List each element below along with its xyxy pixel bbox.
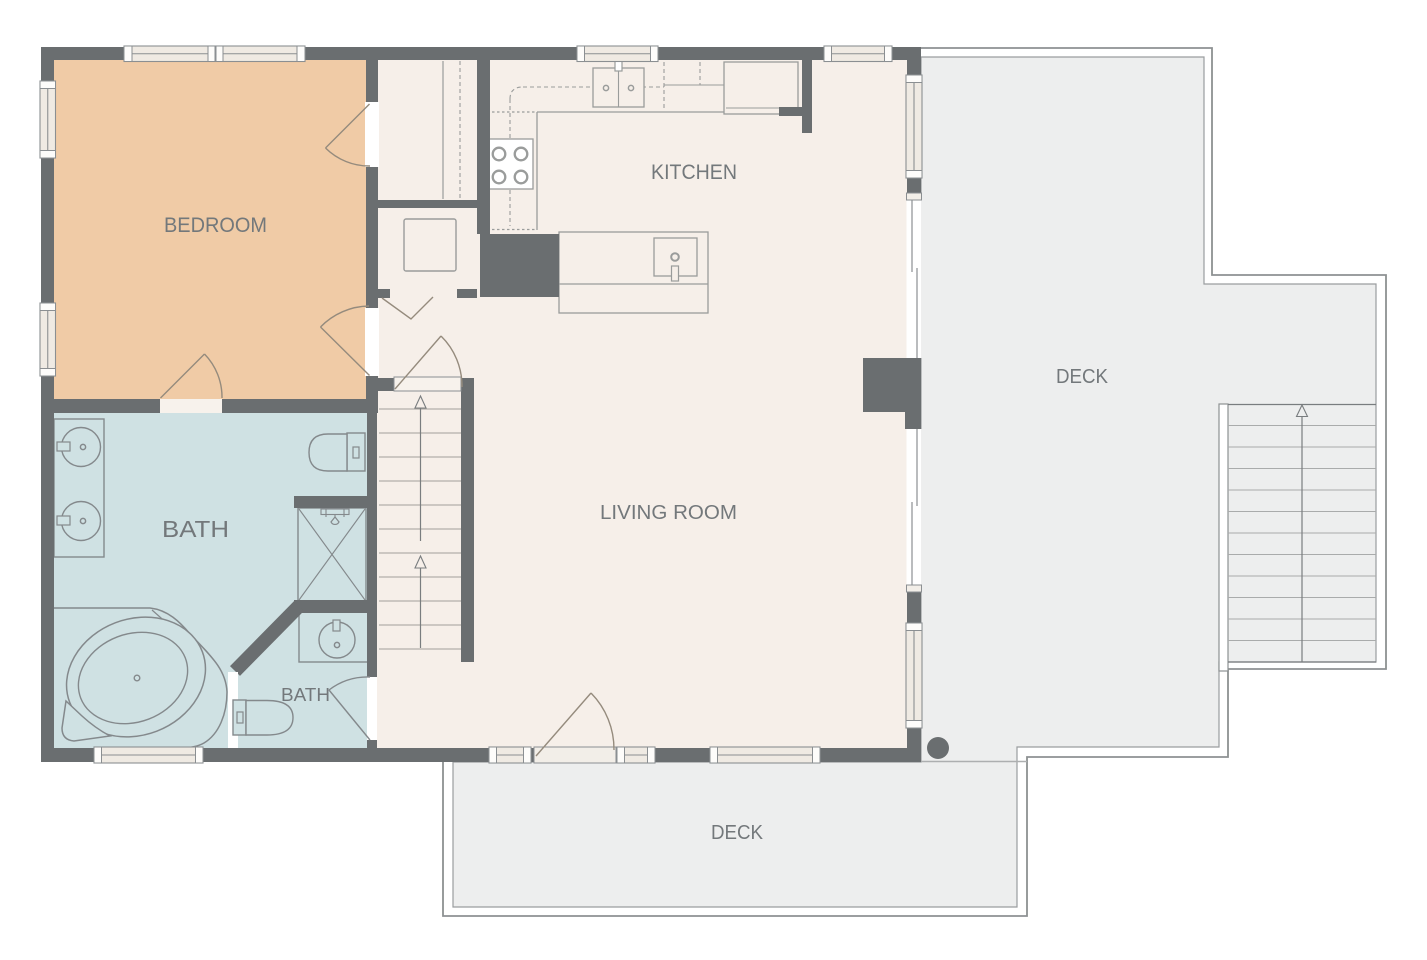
svg-text:BEDROOM: BEDROOM: [164, 214, 267, 237]
svg-text:KITCHEN: KITCHEN: [651, 161, 737, 184]
svg-text:DECK: DECK: [711, 822, 764, 844]
svg-text:BATH: BATH: [162, 516, 229, 542]
svg-text:LIVING ROOM: LIVING ROOM: [600, 502, 737, 524]
svg-text:BATH: BATH: [281, 685, 330, 705]
svg-text:DECK: DECK: [1056, 366, 1109, 388]
